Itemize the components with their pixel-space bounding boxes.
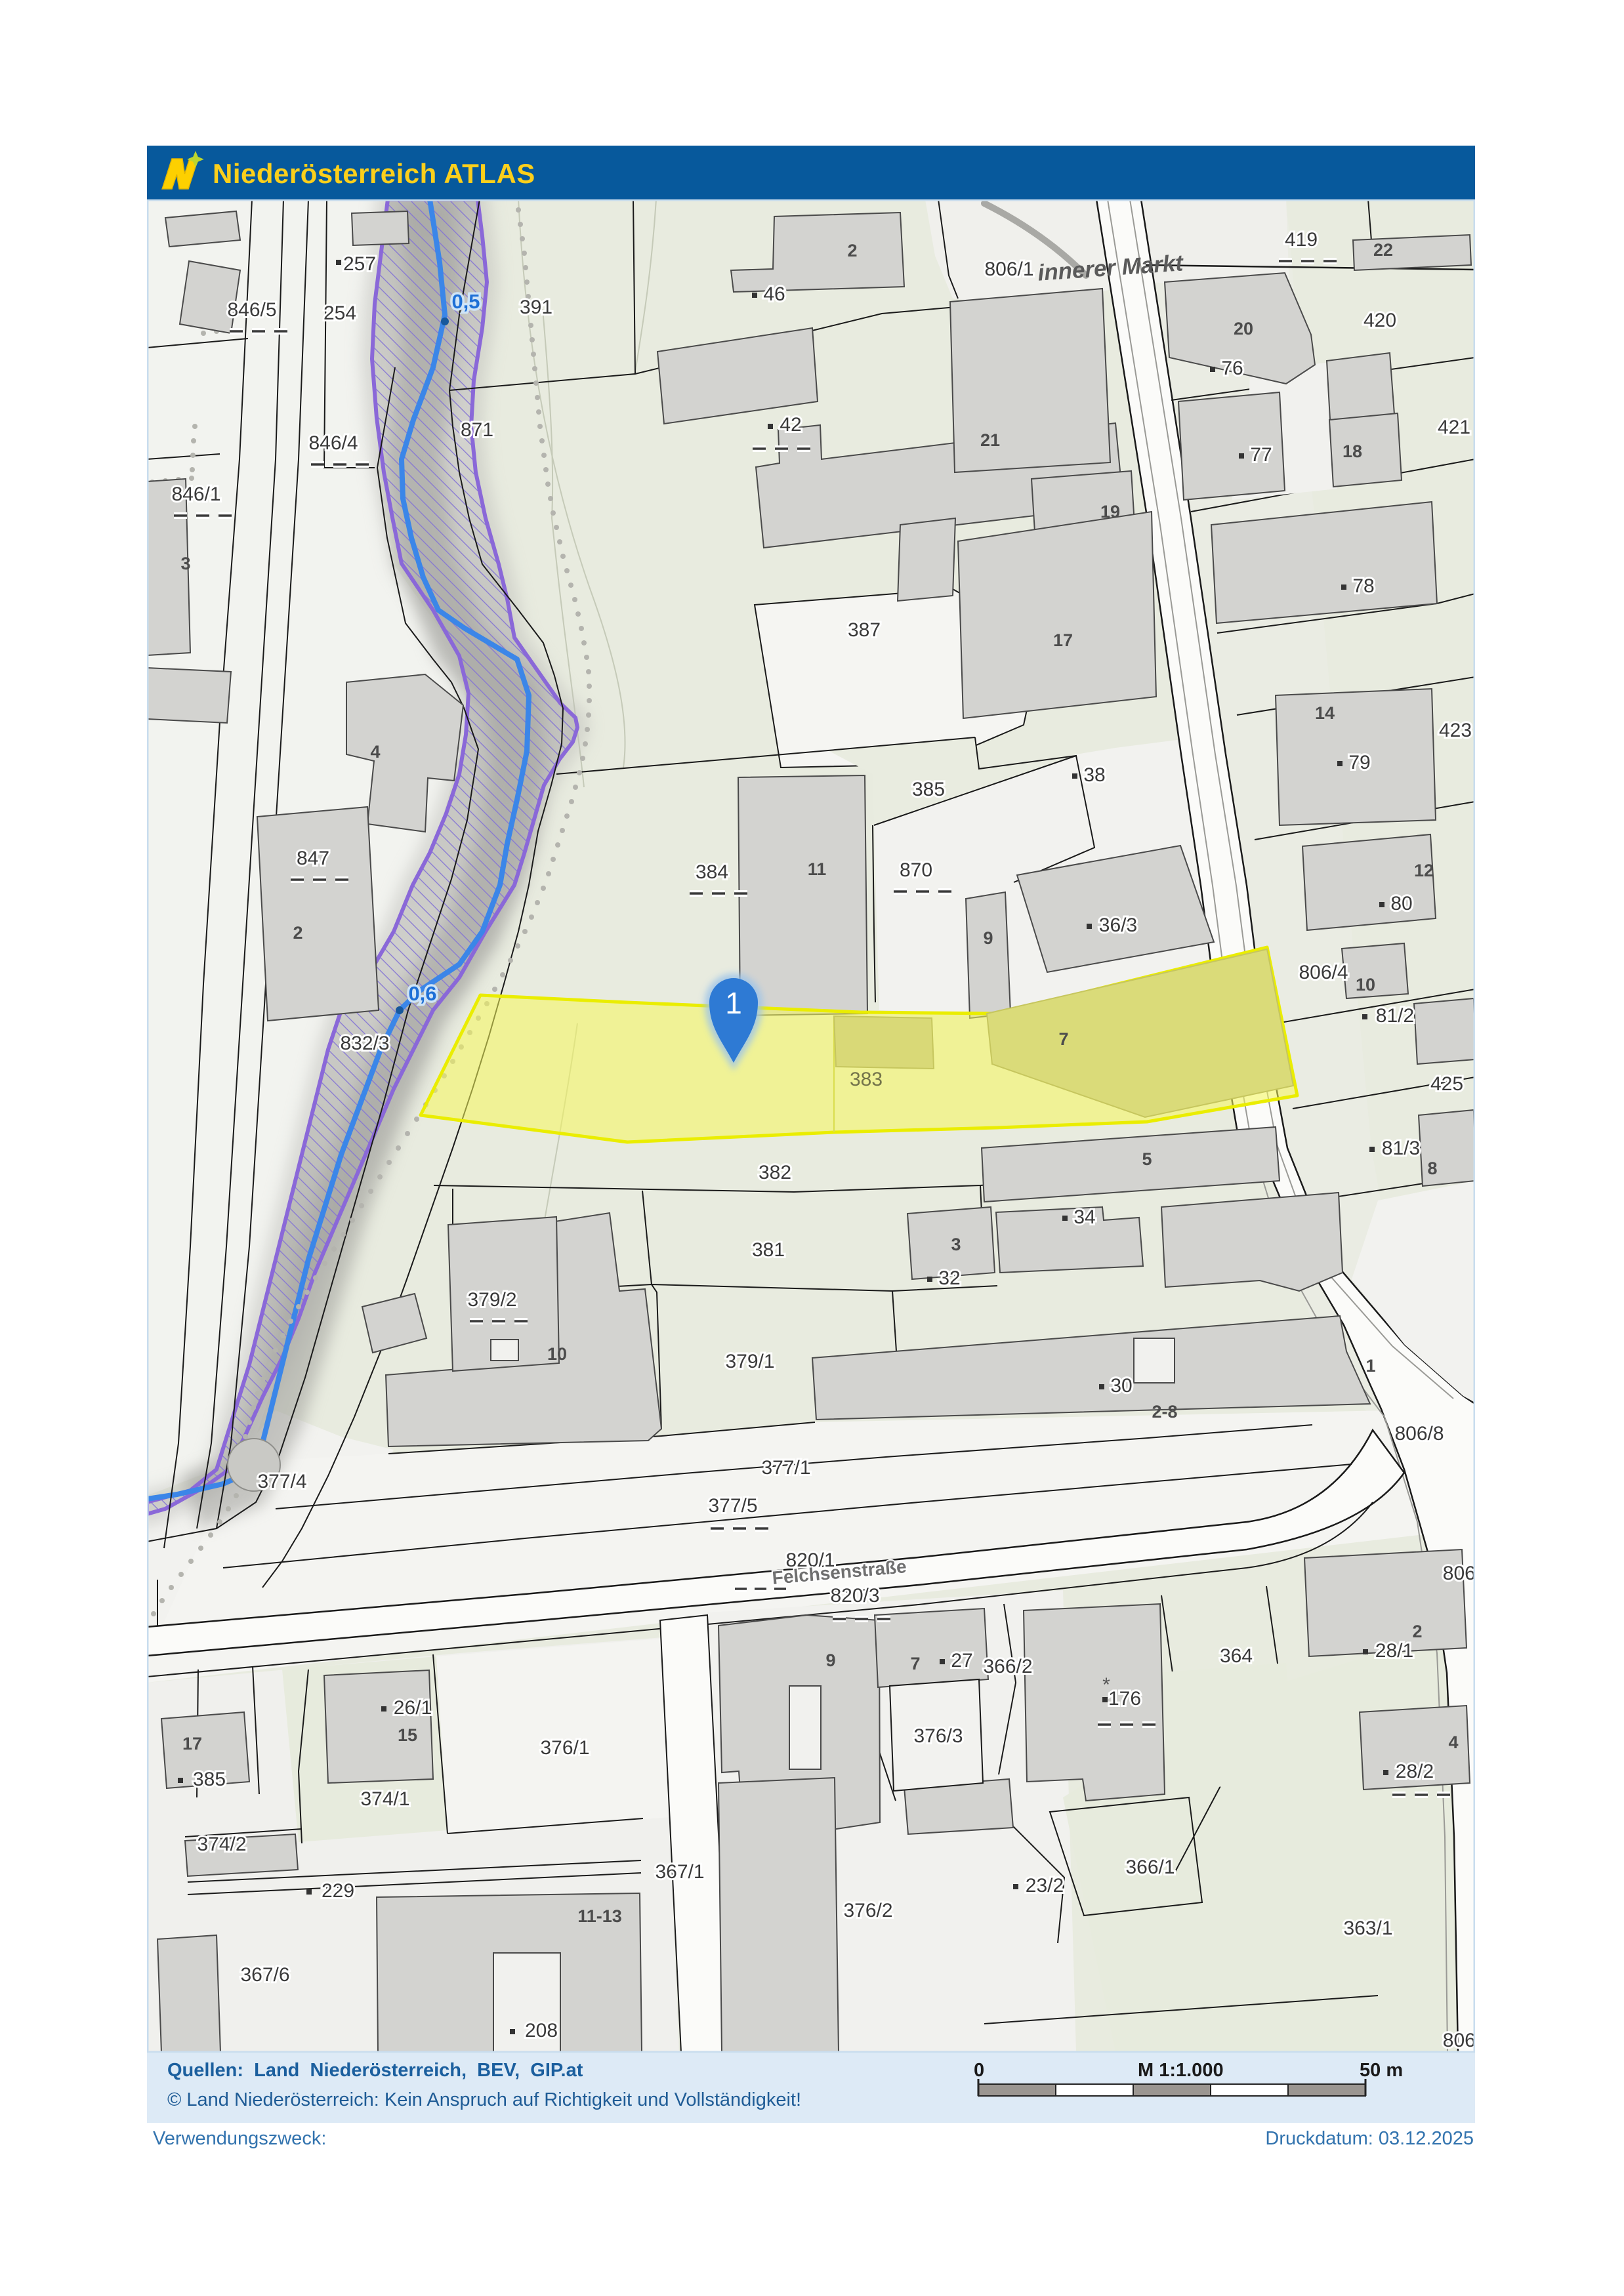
svg-text:30: 30 [1110,1375,1132,1397]
svg-text:382: 382 [759,1162,791,1183]
svg-text:50 m: 50 m [1360,2060,1403,2081]
svg-text:374/2: 374/2 [197,1834,246,1855]
svg-text:379/2: 379/2 [467,1289,516,1311]
svg-text:806/8: 806/8 [1394,1423,1444,1445]
svg-text:366/2: 366/2 [983,1656,1032,1677]
svg-text:2: 2 [293,923,302,943]
svg-text:78: 78 [1352,575,1374,597]
svg-text:0,5: 0,5 [451,290,480,313]
svg-text:421: 421 [1438,417,1470,438]
svg-text:208: 208 [525,2020,558,2041]
svg-text:1: 1 [725,986,742,1020]
svg-text:M 1:1.000: M 1:1.000 [1138,2060,1224,2081]
svg-text:38: 38 [1083,764,1105,786]
svg-text:374/1: 374/1 [360,1788,409,1810]
svg-text:2: 2 [1412,1622,1422,1641]
svg-text:377/1: 377/1 [761,1457,810,1479]
svg-text:77: 77 [1250,444,1272,466]
svg-text:5: 5 [1142,1149,1152,1169]
svg-text:19: 19 [1100,502,1120,522]
svg-text:870: 870 [900,859,932,881]
svg-text:0,6: 0,6 [408,982,436,1005]
svg-text:364: 364 [1220,1645,1253,1667]
svg-text:17: 17 [182,1734,202,1753]
svg-text:387: 387 [848,619,881,641]
svg-text:832/3: 832/3 [340,1033,389,1054]
svg-text:806/1: 806/1 [984,258,1033,280]
svg-text:81/3: 81/3 [1382,1138,1420,1159]
svg-text:363/1: 363/1 [1343,1917,1392,1939]
svg-text:17: 17 [1053,630,1073,650]
svg-text:2: 2 [847,241,857,260]
svg-text:34: 34 [1073,1206,1095,1228]
svg-text:367/6: 367/6 [240,1964,289,1986]
svg-text:22: 22 [1373,240,1393,260]
svg-text:20: 20 [1234,319,1253,338]
svg-text:80: 80 [1390,893,1412,914]
svg-text:366/1: 366/1 [1125,1856,1175,1878]
svg-text:23/2: 23/2 [1026,1875,1064,1896]
svg-text:846/1: 846/1 [171,483,220,505]
svg-text:8: 8 [1427,1158,1437,1178]
svg-text:10: 10 [547,1344,567,1364]
svg-text:367/1: 367/1 [655,1861,704,1883]
svg-text:12: 12 [1414,861,1434,880]
svg-text:254: 254 [323,302,356,324]
svg-text:79: 79 [1348,752,1370,773]
svg-text:2-8: 2-8 [1152,1402,1177,1422]
svg-text:76: 76 [1221,358,1243,379]
svg-text:257: 257 [343,253,376,275]
svg-text:377/5: 377/5 [708,1495,757,1517]
svg-text:9: 9 [983,928,993,948]
svg-text:15: 15 [398,1725,417,1745]
svg-text:26/1: 26/1 [394,1697,432,1719]
svg-text:27: 27 [951,1650,972,1671]
svg-text:847: 847 [297,848,329,869]
svg-text:42: 42 [780,414,801,436]
svg-text:383: 383 [850,1069,883,1090]
svg-text:46: 46 [763,283,785,305]
svg-text:385: 385 [912,779,945,800]
svg-text:21: 21 [980,430,1000,450]
svg-text:7: 7 [1058,1029,1068,1049]
svg-text:3: 3 [180,554,190,573]
svg-text:14: 14 [1315,703,1335,723]
svg-text:10: 10 [1356,975,1375,994]
svg-text:423: 423 [1439,720,1472,741]
svg-text:376/1: 376/1 [540,1737,589,1759]
svg-text:11: 11 [808,859,827,879]
svg-text:32: 32 [938,1267,960,1289]
svg-text:28/1: 28/1 [1375,1640,1413,1662]
svg-text:229: 229 [322,1880,354,1902]
svg-text:871: 871 [461,419,493,441]
svg-text:420: 420 [1364,310,1396,331]
svg-text:0: 0 [974,2060,984,2081]
svg-text:9: 9 [825,1650,835,1670]
svg-text:381: 381 [752,1239,785,1261]
svg-text:376/2: 376/2 [843,1900,892,1921]
svg-text:384: 384 [696,861,728,883]
svg-text:4: 4 [1448,1732,1458,1752]
svg-text:391: 391 [520,297,552,318]
svg-text:820/3: 820/3 [830,1585,879,1607]
svg-text:7: 7 [910,1654,920,1673]
svg-text:377/4: 377/4 [257,1471,306,1492]
svg-text:385: 385 [193,1769,226,1790]
svg-text:846/5: 846/5 [227,299,276,321]
svg-text:1: 1 [1365,1356,1375,1376]
svg-text:81/2: 81/2 [1376,1005,1414,1027]
svg-text:379/1: 379/1 [725,1351,774,1372]
svg-text:4: 4 [370,742,380,762]
svg-text:806/: 806/ [1443,2030,1475,2051]
svg-text:376/3: 376/3 [913,1725,963,1747]
svg-text:28/2: 28/2 [1396,1761,1434,1782]
svg-text:36/3: 36/3 [1099,914,1137,936]
svg-text:425: 425 [1430,1073,1463,1095]
svg-text:3: 3 [951,1235,961,1254]
svg-text:11-13: 11-13 [577,1906,622,1926]
svg-text:419: 419 [1285,229,1318,251]
svg-text:806/4: 806/4 [1299,962,1348,983]
svg-text:176: 176 [1108,1688,1141,1710]
svg-text:18: 18 [1343,441,1362,461]
svg-text:806/: 806/ [1443,1563,1475,1584]
svg-text:846/4: 846/4 [308,432,358,454]
